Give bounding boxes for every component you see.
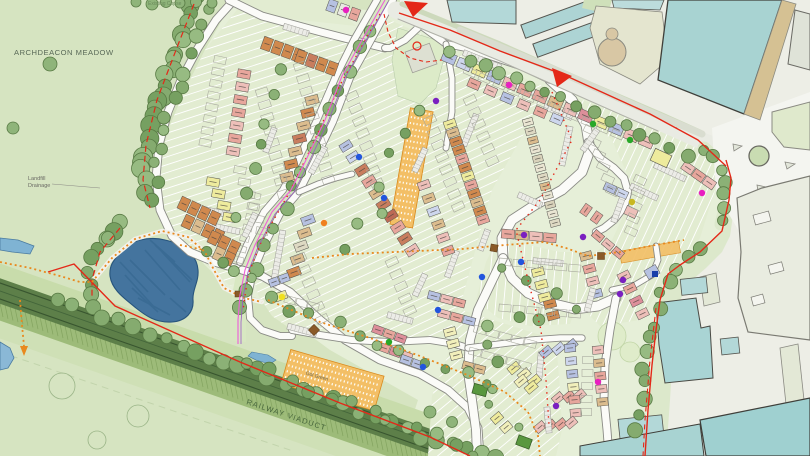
svg-text:Existing Copse: Existing Copse bbox=[148, 1, 182, 7]
svg-text:Drainage: Drainage bbox=[28, 183, 50, 189]
svg-text:Landfill: Landfill bbox=[28, 176, 45, 182]
svg-text:ARCHDEACON MEADOW: ARCHDEACON MEADOW bbox=[14, 48, 114, 57]
